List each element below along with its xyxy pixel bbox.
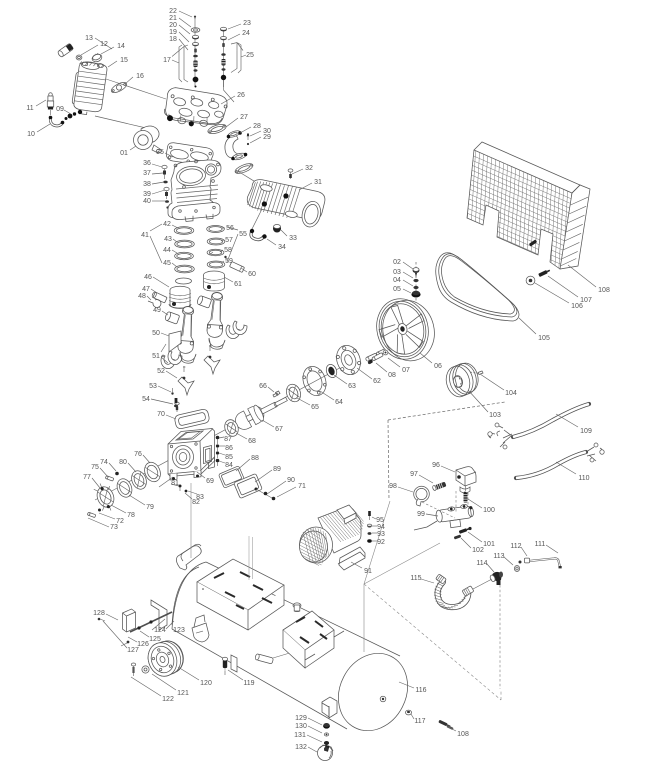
svg-text:99: 99 (417, 511, 425, 518)
svg-text:117: 117 (414, 718, 425, 725)
svg-text:86: 86 (225, 445, 233, 452)
svg-text:87: 87 (224, 436, 232, 443)
svg-text:03: 03 (393, 269, 401, 276)
svg-text:83: 83 (196, 494, 204, 501)
svg-text:67: 67 (275, 426, 283, 433)
svg-text:73: 73 (110, 524, 118, 531)
svg-text:119: 119 (243, 680, 254, 687)
svg-text:22: 22 (169, 8, 177, 15)
svg-text:13: 13 (85, 35, 93, 42)
svg-text:37: 37 (143, 170, 151, 177)
svg-text:123: 123 (173, 627, 185, 634)
svg-text:77: 77 (83, 474, 91, 481)
svg-text:121: 121 (177, 690, 189, 697)
svg-text:40: 40 (143, 198, 151, 205)
svg-text:23: 23 (243, 20, 251, 27)
svg-text:76: 76 (134, 451, 142, 458)
svg-text:108: 108 (598, 287, 610, 294)
svg-text:33: 33 (289, 235, 297, 242)
svg-text:64: 64 (335, 399, 343, 406)
svg-text:32: 32 (305, 165, 313, 172)
svg-text:110: 110 (578, 475, 589, 482)
svg-text:100: 100 (483, 507, 495, 514)
svg-text:79: 79 (146, 504, 154, 511)
svg-text:69: 69 (206, 478, 214, 485)
svg-text:88: 88 (251, 455, 259, 462)
svg-text:02: 02 (393, 259, 401, 266)
svg-text:68: 68 (248, 438, 256, 445)
svg-text:109: 109 (580, 428, 592, 435)
svg-text:105: 105 (538, 335, 550, 342)
svg-text:92: 92 (377, 539, 385, 546)
svg-text:59: 59 (225, 258, 233, 265)
svg-text:29: 29 (263, 134, 271, 141)
svg-text:89: 89 (273, 466, 281, 473)
svg-text:63: 63 (348, 383, 356, 390)
svg-text:85: 85 (225, 454, 233, 461)
svg-text:131: 131 (294, 732, 306, 739)
svg-text:62: 62 (373, 378, 381, 385)
svg-text:51: 51 (152, 353, 160, 360)
svg-text:108: 108 (457, 731, 469, 738)
svg-text:130: 130 (295, 723, 307, 730)
svg-text:127: 127 (127, 647, 139, 654)
svg-text:124: 124 (154, 627, 166, 634)
svg-text:104: 104 (505, 390, 517, 397)
svg-text:27: 27 (240, 114, 248, 121)
svg-text:12: 12 (100, 41, 108, 48)
svg-text:120: 120 (200, 680, 212, 687)
svg-text:91: 91 (364, 568, 372, 575)
svg-text:04: 04 (393, 277, 401, 284)
svg-text:111: 111 (535, 541, 546, 548)
svg-text:95: 95 (376, 517, 384, 524)
svg-text:47: 47 (142, 286, 150, 293)
svg-text:34: 34 (278, 244, 286, 251)
svg-text:17: 17 (163, 57, 171, 64)
svg-text:35: 35 (156, 149, 164, 156)
svg-text:07: 07 (402, 367, 410, 374)
svg-text:102: 102 (472, 547, 484, 554)
svg-text:49: 49 (153, 307, 161, 314)
svg-text:05: 05 (393, 286, 401, 293)
svg-text:70: 70 (157, 411, 165, 418)
svg-text:43: 43 (164, 236, 172, 243)
svg-text:14: 14 (117, 43, 125, 50)
svg-text:122: 122 (162, 696, 174, 703)
svg-text:60: 60 (248, 271, 256, 278)
svg-text:06: 06 (434, 363, 442, 370)
svg-text:15: 15 (120, 57, 128, 64)
svg-text:93: 93 (377, 531, 385, 538)
svg-text:65: 65 (311, 404, 319, 411)
svg-text:09: 09 (56, 106, 64, 113)
svg-text:46: 46 (144, 274, 152, 281)
svg-text:19: 19 (169, 29, 177, 36)
svg-text:01: 01 (120, 150, 128, 157)
svg-text:66: 66 (259, 383, 267, 390)
svg-text:55: 55 (239, 231, 247, 238)
svg-text:94: 94 (377, 524, 385, 531)
svg-text:36: 36 (143, 160, 151, 167)
svg-text:103: 103 (489, 412, 501, 419)
svg-text:132: 132 (295, 744, 307, 751)
svg-text:71: 71 (298, 483, 306, 490)
svg-text:114: 114 (476, 560, 487, 567)
svg-text:48: 48 (138, 293, 146, 300)
svg-text:101: 101 (483, 541, 495, 548)
svg-text:61: 61 (234, 281, 242, 288)
svg-text:53: 53 (149, 383, 157, 390)
svg-text:126: 126 (137, 641, 149, 648)
svg-text:128: 128 (93, 610, 105, 617)
svg-text:44: 44 (163, 247, 171, 254)
svg-text:11: 11 (26, 105, 33, 112)
svg-text:74: 74 (100, 459, 108, 466)
svg-text:90: 90 (287, 477, 295, 484)
svg-text:52: 52 (157, 368, 165, 375)
svg-text:75: 75 (91, 464, 99, 471)
svg-text:57: 57 (225, 237, 233, 244)
svg-text:96: 96 (432, 462, 440, 469)
svg-text:107: 107 (580, 297, 592, 304)
svg-text:78: 78 (127, 512, 135, 519)
svg-text:116: 116 (415, 687, 426, 694)
svg-text:50: 50 (152, 330, 160, 337)
svg-text:18: 18 (169, 36, 177, 43)
svg-text:80: 80 (119, 459, 127, 466)
svg-text:24: 24 (242, 30, 250, 37)
svg-text:112: 112 (510, 543, 521, 550)
svg-text:38: 38 (143, 181, 151, 188)
svg-text:41: 41 (141, 232, 149, 239)
svg-text:42: 42 (163, 221, 171, 228)
svg-text:125: 125 (149, 636, 161, 643)
svg-text:25: 25 (246, 52, 254, 59)
svg-text:21: 21 (169, 15, 177, 22)
svg-text:84: 84 (225, 462, 233, 469)
svg-text:98: 98 (389, 483, 397, 490)
svg-text:113: 113 (493, 553, 504, 560)
svg-text:16: 16 (136, 73, 144, 80)
svg-text:26: 26 (237, 92, 245, 99)
svg-text:31: 31 (314, 179, 322, 186)
svg-text:129: 129 (295, 715, 307, 722)
svg-text:106: 106 (571, 303, 583, 310)
svg-text:20: 20 (169, 22, 177, 29)
svg-text:45: 45 (163, 260, 171, 267)
svg-text:39: 39 (143, 191, 151, 198)
svg-text:28: 28 (253, 123, 261, 130)
svg-text:08: 08 (388, 372, 396, 379)
svg-text:115: 115 (410, 575, 421, 582)
svg-text:10: 10 (27, 131, 35, 138)
svg-text:54: 54 (142, 396, 150, 403)
svg-text:97: 97 (410, 471, 418, 478)
